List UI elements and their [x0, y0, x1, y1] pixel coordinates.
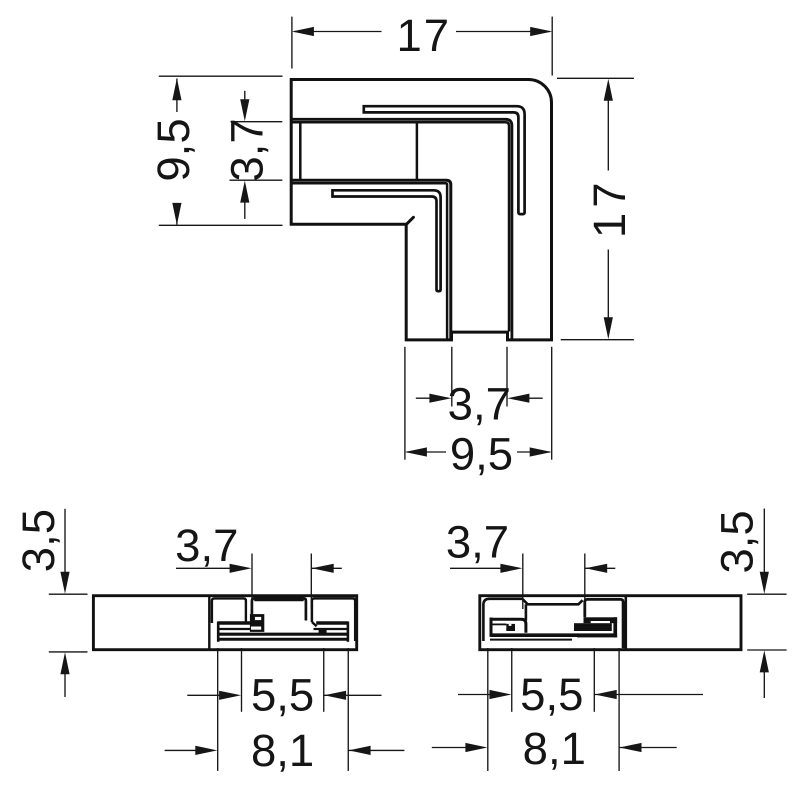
- svg-text:5,5: 5,5: [251, 670, 314, 721]
- svg-text:3,5: 3,5: [712, 510, 763, 573]
- svg-text:9,5: 9,5: [148, 118, 199, 181]
- svg-text:17: 17: [584, 177, 635, 238]
- svg-text:8,1: 8,1: [523, 723, 586, 774]
- svg-text:9,5: 9,5: [450, 429, 513, 480]
- svg-text:3,7: 3,7: [448, 379, 511, 430]
- svg-text:17: 17: [396, 10, 451, 61]
- svg-text:3,7: 3,7: [446, 516, 509, 567]
- svg-text:3,7: 3,7: [222, 118, 273, 181]
- svg-text:3,5: 3,5: [13, 509, 64, 572]
- svg-text:5,5: 5,5: [520, 669, 583, 720]
- svg-text:8,1: 8,1: [251, 725, 314, 776]
- svg-text:3,7: 3,7: [175, 520, 238, 571]
